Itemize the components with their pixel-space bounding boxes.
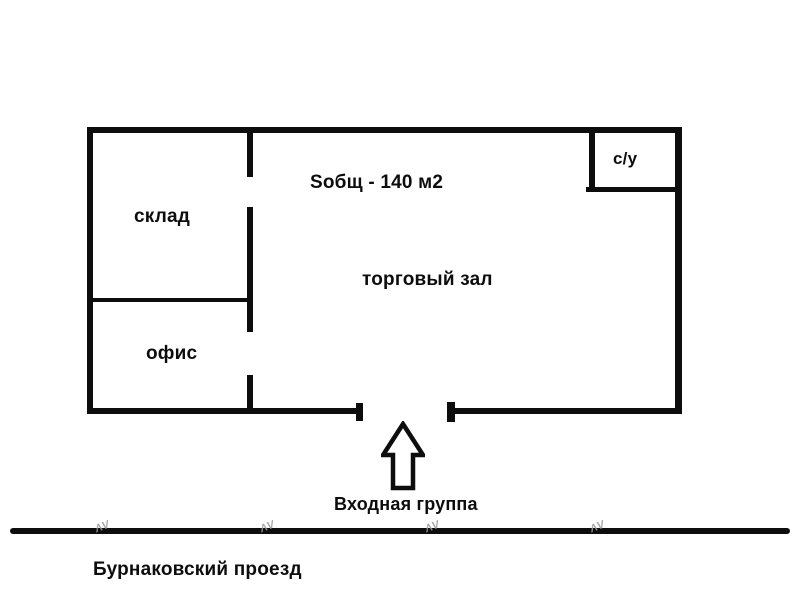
wall-bottom-right (448, 408, 682, 414)
room-label-storage: склад (134, 207, 190, 226)
wall-wc-left (589, 130, 595, 190)
entrance-opening-left-cap (356, 403, 363, 421)
entrance-opening-right-cap (447, 402, 455, 422)
street-name-label: Бурнаковский проезд (93, 560, 302, 579)
entrance-group-label: Входная группа (334, 495, 478, 513)
wall-storage-office-divider (90, 298, 250, 302)
street-line (10, 528, 790, 534)
floorplan-canvas: Sобщ - 140 м2 склад офис торговый зал с/… (0, 0, 800, 600)
wall-left (87, 127, 93, 414)
room-label-sales-hall: торговый зал (362, 270, 493, 289)
total-area-label: Sобщ - 140 м2 (310, 173, 443, 192)
room-label-office: офис (146, 344, 197, 363)
wall-wc-bottom (586, 187, 682, 192)
wall-bottom-left (87, 408, 362, 414)
wall-storage-partition-upper (247, 127, 253, 177)
entrance-up-arrow-icon (381, 421, 425, 491)
room-label-wc: с/у (613, 150, 637, 167)
wall-right (675, 127, 682, 414)
wall-storage-partition-lower (247, 375, 253, 414)
wall-storage-partition-middle (247, 207, 253, 332)
